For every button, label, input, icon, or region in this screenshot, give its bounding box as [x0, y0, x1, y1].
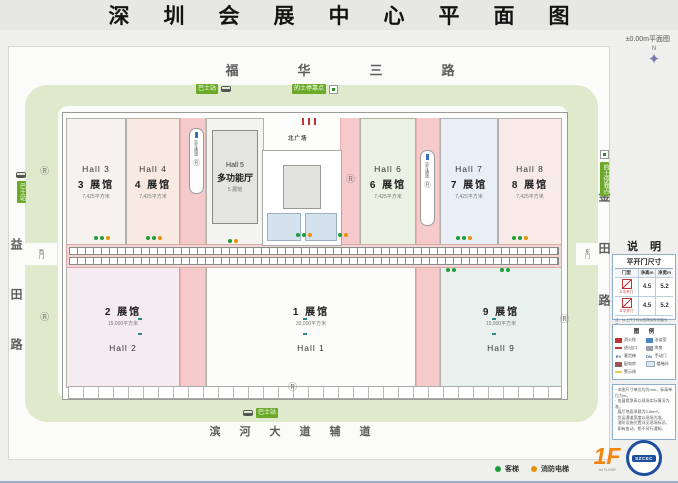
compass-icon: N ✦	[644, 46, 664, 72]
hall-6-en: Hall 6	[374, 164, 402, 174]
hall-3-cn: 3 展馆	[78, 176, 114, 191]
grid-tick	[303, 333, 307, 335]
central-connector	[66, 244, 562, 268]
hall-8-en: Hall 8	[516, 164, 544, 174]
title-bar: 深圳会展中心平面图	[0, 0, 678, 30]
hall-5-sub: 5 展馆	[228, 186, 242, 193]
bus-icon	[16, 172, 26, 178]
hall-3-area: 7,425平方米	[82, 193, 110, 200]
west-gate: 西门	[25, 243, 57, 265]
restroom-icon: Ⓡ	[424, 180, 431, 190]
door-size-table: 门型 净高m 净宽m A 平开门 4.5 5.2 B 平开门 4.5 5.2	[615, 269, 673, 316]
truck-passage-marker: 货车通道 Ⓡ	[420, 150, 435, 226]
notes-box: · 本图尺寸单位均为mm，标高单位为m。 · 各展馆净高以现场实际情况为准。 ·…	[612, 384, 676, 440]
note-line: · 消防设施位置详见现场标识。	[615, 420, 673, 426]
door-icon	[622, 279, 632, 289]
east-gate-label: 东门	[584, 249, 590, 259]
hall-9: 9 展馆 15,000平方米 Hall 9	[440, 266, 562, 388]
hall-6: Hall 6 6 展馆 7,425平方米	[360, 118, 416, 246]
hall-2: 2 展馆 15,000平方米 Hall 2	[66, 266, 180, 388]
west-gate-label: 西门	[38, 249, 44, 259]
door-size-box: 平开门尺寸 门型 净高m 净宽m A 平开门 4.5 5.2 B 平开门 4.5…	[612, 254, 676, 320]
col-door-type: 门型	[615, 269, 639, 278]
meeting-room-swatch	[646, 338, 653, 343]
grid-tick	[492, 318, 496, 320]
passage-label: 货车通道	[194, 140, 199, 156]
warning-line-swatch	[615, 371, 622, 373]
hall-2-en: Hall 2	[109, 343, 137, 353]
elevator-dots	[296, 233, 312, 237]
hall-7-area: 7,425平方米	[455, 193, 483, 200]
bus-stop-label: 巴士站	[17, 181, 26, 203]
flag-icon	[314, 118, 316, 125]
floorplan-page: 深圳会展中心平面图 ±0.00m平面图 N ✦ 福华三路 滨河大道辅道 益田路 …	[0, 0, 678, 483]
passenger-elevator-icon	[495, 466, 501, 472]
stairwell-swatch	[646, 361, 655, 367]
street-fuhua-road: 福华三路	[160, 60, 520, 79]
street-jintian-road: 金田路	[596, 190, 613, 346]
szcec-logo: SZCEC	[626, 440, 662, 476]
taxi-stop-right: 的士停靠点	[600, 150, 609, 196]
door-type-b: B 平开门	[615, 297, 639, 316]
legend-right-column: 洽谈室 库房 DN手动门 楼梯间	[646, 337, 674, 375]
legend-title: 图 例	[615, 327, 673, 335]
hall-3-en: Hall 3	[82, 164, 110, 174]
door-type-a: A 平开门	[615, 278, 639, 297]
door-size-title: 平开门尺寸	[615, 257, 673, 269]
door-icon	[622, 298, 632, 308]
col-clear-width: 净宽m	[656, 269, 673, 278]
hall-9-area: 15,000平方米	[486, 320, 516, 327]
bus-stop-top: 巴士站	[196, 84, 231, 94]
elevator-legend: 客梯 消防电梯	[495, 464, 569, 474]
restroom-icon: Ⓡ	[288, 384, 297, 393]
hall-4-cn: 4 展馆	[135, 176, 171, 191]
flag-icon	[308, 118, 310, 125]
note-line: · 如有变动，恕不另行通知。	[615, 426, 673, 432]
legend-left-column: 消火栓 进/出口 EV客货梯 配电房 警示线	[615, 337, 643, 375]
taxi-stop-top: 的士停靠点	[292, 84, 338, 94]
hall-6-cn: 6 展馆	[370, 176, 406, 191]
hydrant-swatch	[615, 338, 622, 343]
grid-tick	[138, 318, 142, 320]
corridor	[180, 266, 206, 386]
floor-indicator: 1F 1st FLOOR	[592, 444, 622, 472]
panel-header: 说明	[612, 238, 676, 254]
storage-swatch	[646, 346, 653, 351]
szcec-logo-text: SZCEC	[632, 455, 656, 462]
taxi-icon	[600, 150, 609, 159]
power-room-swatch	[615, 362, 622, 367]
hall-1-area: 30,000平方米	[296, 320, 326, 327]
col-clear-height: 净高m	[639, 269, 656, 278]
bus-stop-label: 巴士站	[196, 84, 218, 94]
manual-door-code-swatch: DN	[646, 354, 653, 359]
door-row	[69, 247, 559, 255]
hall-2-area: 15,000平方米	[108, 320, 138, 327]
elevation-label: ±0.00m平面图	[626, 34, 670, 44]
bus-stop-label: 巴士站	[256, 408, 278, 418]
hall-9-cn: 9 展馆	[483, 303, 519, 318]
corridor	[416, 266, 440, 386]
hall-8-area: 7,425平方米	[516, 193, 544, 200]
taxi-icon	[329, 85, 338, 94]
bus-icon	[221, 86, 231, 92]
passage-tick-icon	[195, 132, 198, 138]
hall-1: 1 展馆 30,000平方米 Hall 1	[206, 266, 416, 388]
note-line: · 本图尺寸单位均为mm，标高单位为m。	[615, 387, 673, 398]
hall-4-area: 7,425平方米	[139, 193, 167, 200]
door-b-width: 5.2	[656, 297, 673, 316]
hall-2-cn: 2 展馆	[105, 303, 141, 318]
grid-tick	[138, 333, 142, 335]
restroom-icon: Ⓡ	[40, 168, 49, 177]
compass-star-icon: ✦	[644, 52, 664, 68]
street-yitian-road: 益田路	[8, 238, 25, 388]
bus-stop-left: 巴士站	[16, 172, 26, 203]
passage-tick-icon	[426, 154, 429, 160]
elevator-dots	[456, 236, 472, 240]
hall-1-en: Hall 1	[297, 343, 325, 353]
hall-4-en: Hall 4	[139, 164, 167, 174]
hall-7-cn: 7 展馆	[451, 176, 487, 191]
hall-6-area: 7,425平方米	[374, 193, 402, 200]
elevator-dots	[512, 236, 528, 240]
taxi-stop-label: 的士停靠点	[600, 162, 609, 196]
elevator-dots	[500, 268, 510, 272]
elevator-code-swatch: EV	[615, 354, 622, 359]
hall-8-cn: 8 展馆	[512, 176, 548, 191]
door-a-height: 4.5	[639, 278, 656, 297]
taxi-stop-label: 的士停靠点	[292, 84, 326, 94]
grid-tick	[303, 318, 307, 320]
door-b-height: 4.5	[639, 297, 656, 316]
hall-7: Hall 7 7 展馆 7,425平方米	[440, 118, 498, 246]
elevator-dots	[146, 236, 162, 240]
hall-5-en: Hall 5	[226, 162, 244, 169]
passenger-elevator-label: 客梯	[505, 464, 519, 474]
elevator-dots	[228, 239, 238, 243]
elevator-dots	[94, 236, 110, 240]
page-title: 深圳会展中心平面图	[75, 0, 604, 30]
hall-3: Hall 3 3 展馆 7,425平方米	[66, 118, 126, 246]
elevator-dots	[446, 268, 456, 272]
note-line: · 各展馆净高以现场实际情况为准。	[615, 398, 673, 409]
street-binhe-road: 滨河大道辅道	[180, 423, 400, 439]
central-atrium	[262, 150, 342, 246]
door-a-width: 5.2	[656, 278, 673, 297]
hall-1-cn: 1 展馆	[293, 303, 329, 318]
restroom-icon: Ⓡ	[346, 176, 355, 185]
north-plaza-label: 北广场	[288, 134, 308, 142]
hall-5-cn: 多功能厅	[217, 171, 253, 184]
hall-7-en: Hall 7	[455, 164, 483, 174]
elevator-dots	[338, 233, 348, 237]
bus-stop-bottom: 巴士站	[243, 408, 278, 418]
legend-box: 图 例 消火栓 进/出口 EV客货梯 配电房 警示线 洽谈室 库房 DN手动门 …	[612, 324, 676, 380]
truck-passage-marker: 货车通道 Ⓡ	[189, 128, 204, 194]
restroom-icon: Ⓡ	[193, 158, 200, 168]
restroom-icon: Ⓡ	[40, 314, 49, 323]
hall-9-en: Hall 9	[487, 343, 515, 353]
entrance-swatch	[615, 347, 622, 349]
floor-number: 1F	[592, 444, 622, 468]
hall-8: Hall 8 8 展馆 7,425平方米	[498, 118, 562, 246]
passage-label: 货车通道	[425, 162, 430, 178]
fire-elevator-label: 消防电梯	[541, 464, 569, 474]
escalator-block	[283, 165, 321, 209]
grid-tick	[492, 333, 496, 335]
hall-4: Hall 4 4 展馆 7,425平方米	[126, 118, 180, 246]
flag-icon	[302, 118, 304, 125]
door-row	[69, 257, 559, 265]
restroom-icon: Ⓡ	[560, 316, 569, 325]
east-gate: 东门	[576, 243, 598, 265]
bus-icon	[243, 410, 253, 416]
loading-dock-strip	[68, 386, 562, 399]
fire-elevator-icon	[531, 466, 537, 472]
hall-5: Hall 5 多功能厅 5 展馆	[212, 130, 258, 224]
